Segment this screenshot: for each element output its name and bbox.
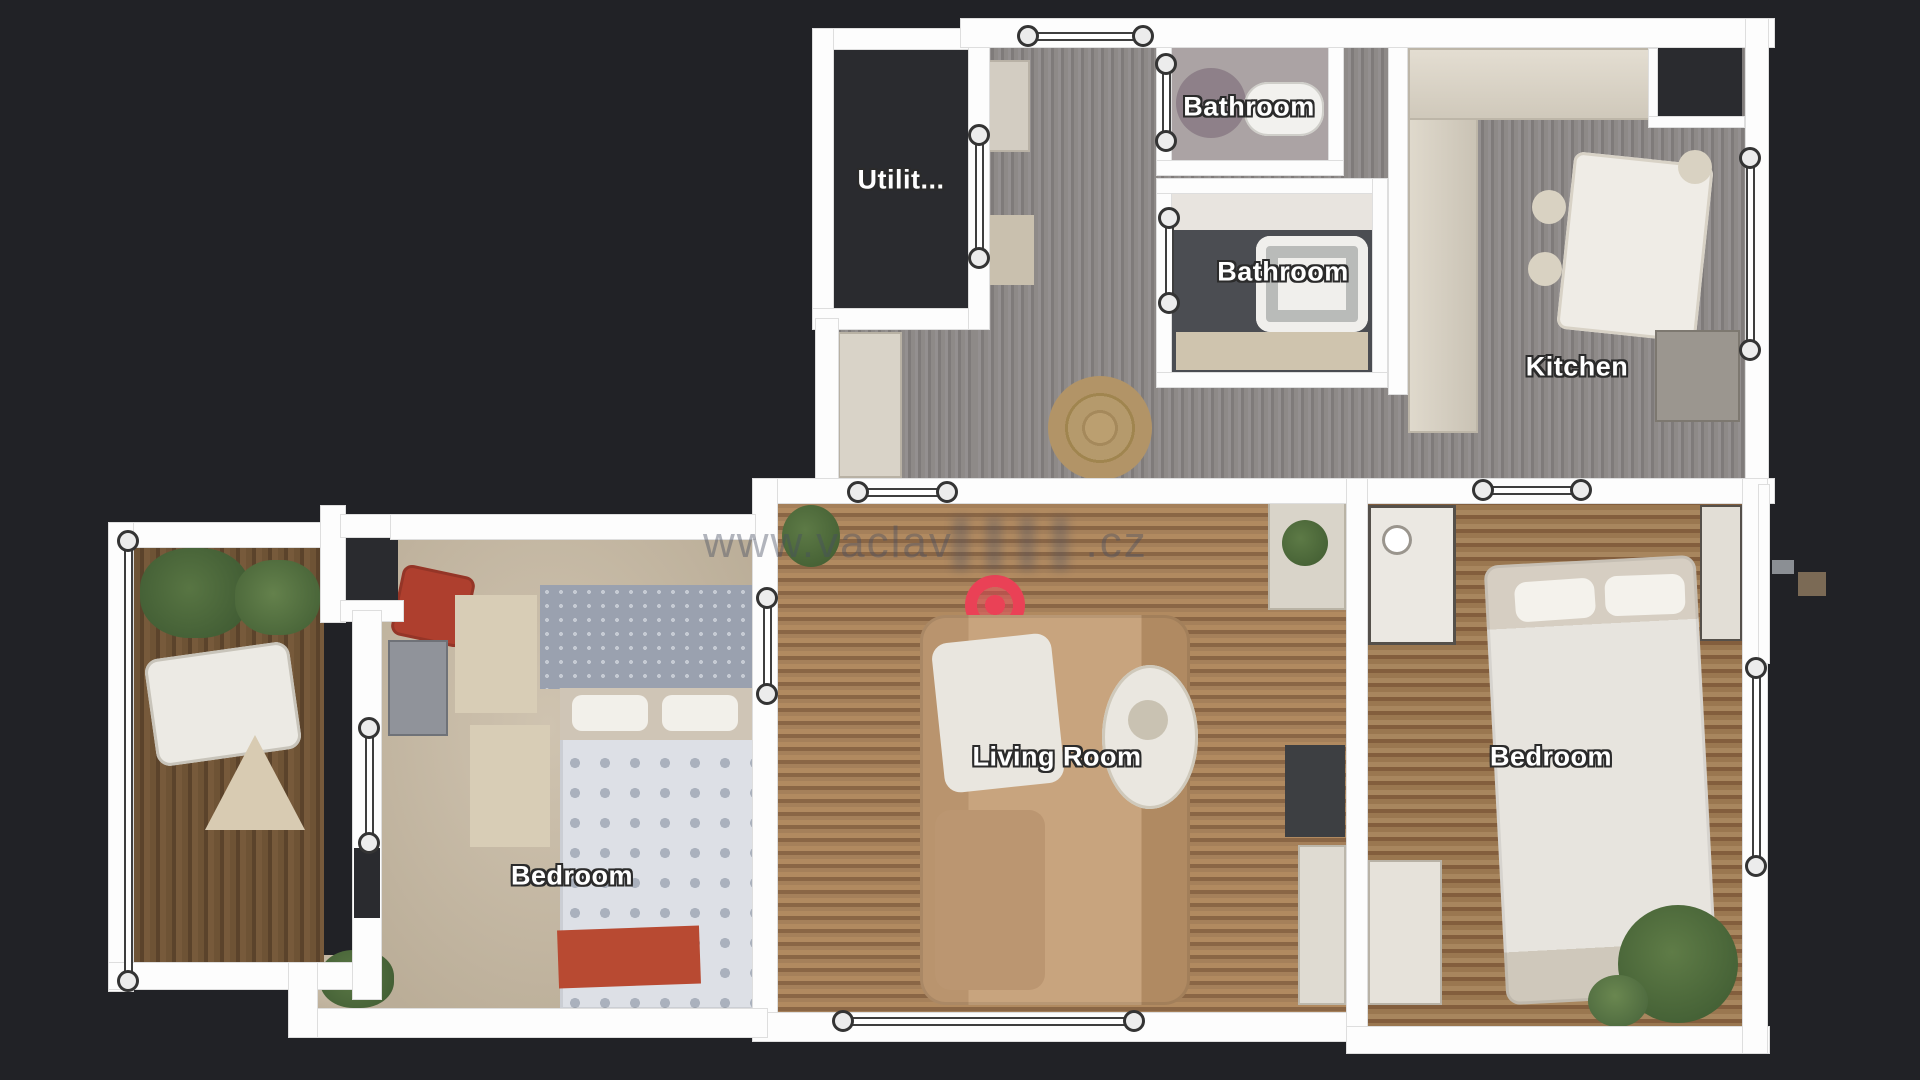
watermark: www.vaclav▌▌▌▌.cz [703, 518, 1148, 568]
door-opening-rail[interactable] [1752, 668, 1761, 866]
door-opening-rail[interactable] [843, 1017, 1134, 1026]
door-handle[interactable] [1155, 130, 1177, 152]
room-label-living-room: Living Room [973, 742, 1142, 773]
room-label-bathroom-mid: Bathroom [1217, 257, 1349, 288]
door-handle[interactable] [968, 247, 990, 269]
door-opening-rail[interactable] [124, 541, 133, 981]
door-handle[interactable] [1132, 25, 1154, 47]
door-opening-rail[interactable] [1746, 158, 1755, 350]
door-opening-rail[interactable] [1028, 32, 1143, 41]
room-label-bathroom-top: Bathroom [1183, 92, 1315, 123]
door-handle[interactable] [756, 683, 778, 705]
door-handle[interactable] [968, 124, 990, 146]
door-handle[interactable] [1745, 657, 1767, 679]
floorplan-canvas[interactable]: Utilit... Bathroom Bathroom Kitchen Livi… [0, 0, 1920, 1080]
door-handle[interactable] [847, 481, 869, 503]
door-handle[interactable] [358, 717, 380, 739]
watermark-illegible-segment: ▌▌▌▌ [953, 518, 1086, 567]
door-handle[interactable] [1158, 207, 1180, 229]
door-handle[interactable] [1123, 1010, 1145, 1032]
door-opening-rail[interactable] [858, 488, 947, 497]
door-opening-rail[interactable] [763, 598, 772, 694]
door-handle[interactable] [117, 530, 139, 552]
door-opening-rail[interactable] [1165, 218, 1174, 303]
door-handle[interactable] [117, 970, 139, 992]
door-handle[interactable] [1745, 855, 1767, 877]
door-handle[interactable] [1570, 479, 1592, 501]
door-handle[interactable] [1158, 292, 1180, 314]
door-handle[interactable] [358, 832, 380, 854]
watermark-visible-text: www.vaclav [703, 518, 953, 567]
watermark-suffix: .cz [1086, 518, 1148, 567]
door-handle[interactable] [1739, 339, 1761, 361]
door-handle[interactable] [1739, 147, 1761, 169]
room-label-utility: Utilit... [858, 165, 945, 196]
door-handle[interactable] [1472, 479, 1494, 501]
room-label-bedroom-right: Bedroom [1490, 742, 1612, 773]
room-label-kitchen: Kitchen [1526, 352, 1629, 383]
door-opening-rail[interactable] [365, 728, 374, 843]
door-handle[interactable] [832, 1010, 854, 1032]
room-label-bedroom-left: Bedroom [511, 861, 633, 892]
door-handle[interactable] [1155, 53, 1177, 75]
door-opening-rail[interactable] [975, 135, 984, 258]
door-handle[interactable] [1017, 25, 1039, 47]
door-opening-rail[interactable] [1483, 486, 1581, 495]
door-handle[interactable] [936, 481, 958, 503]
door-handle[interactable] [756, 587, 778, 609]
